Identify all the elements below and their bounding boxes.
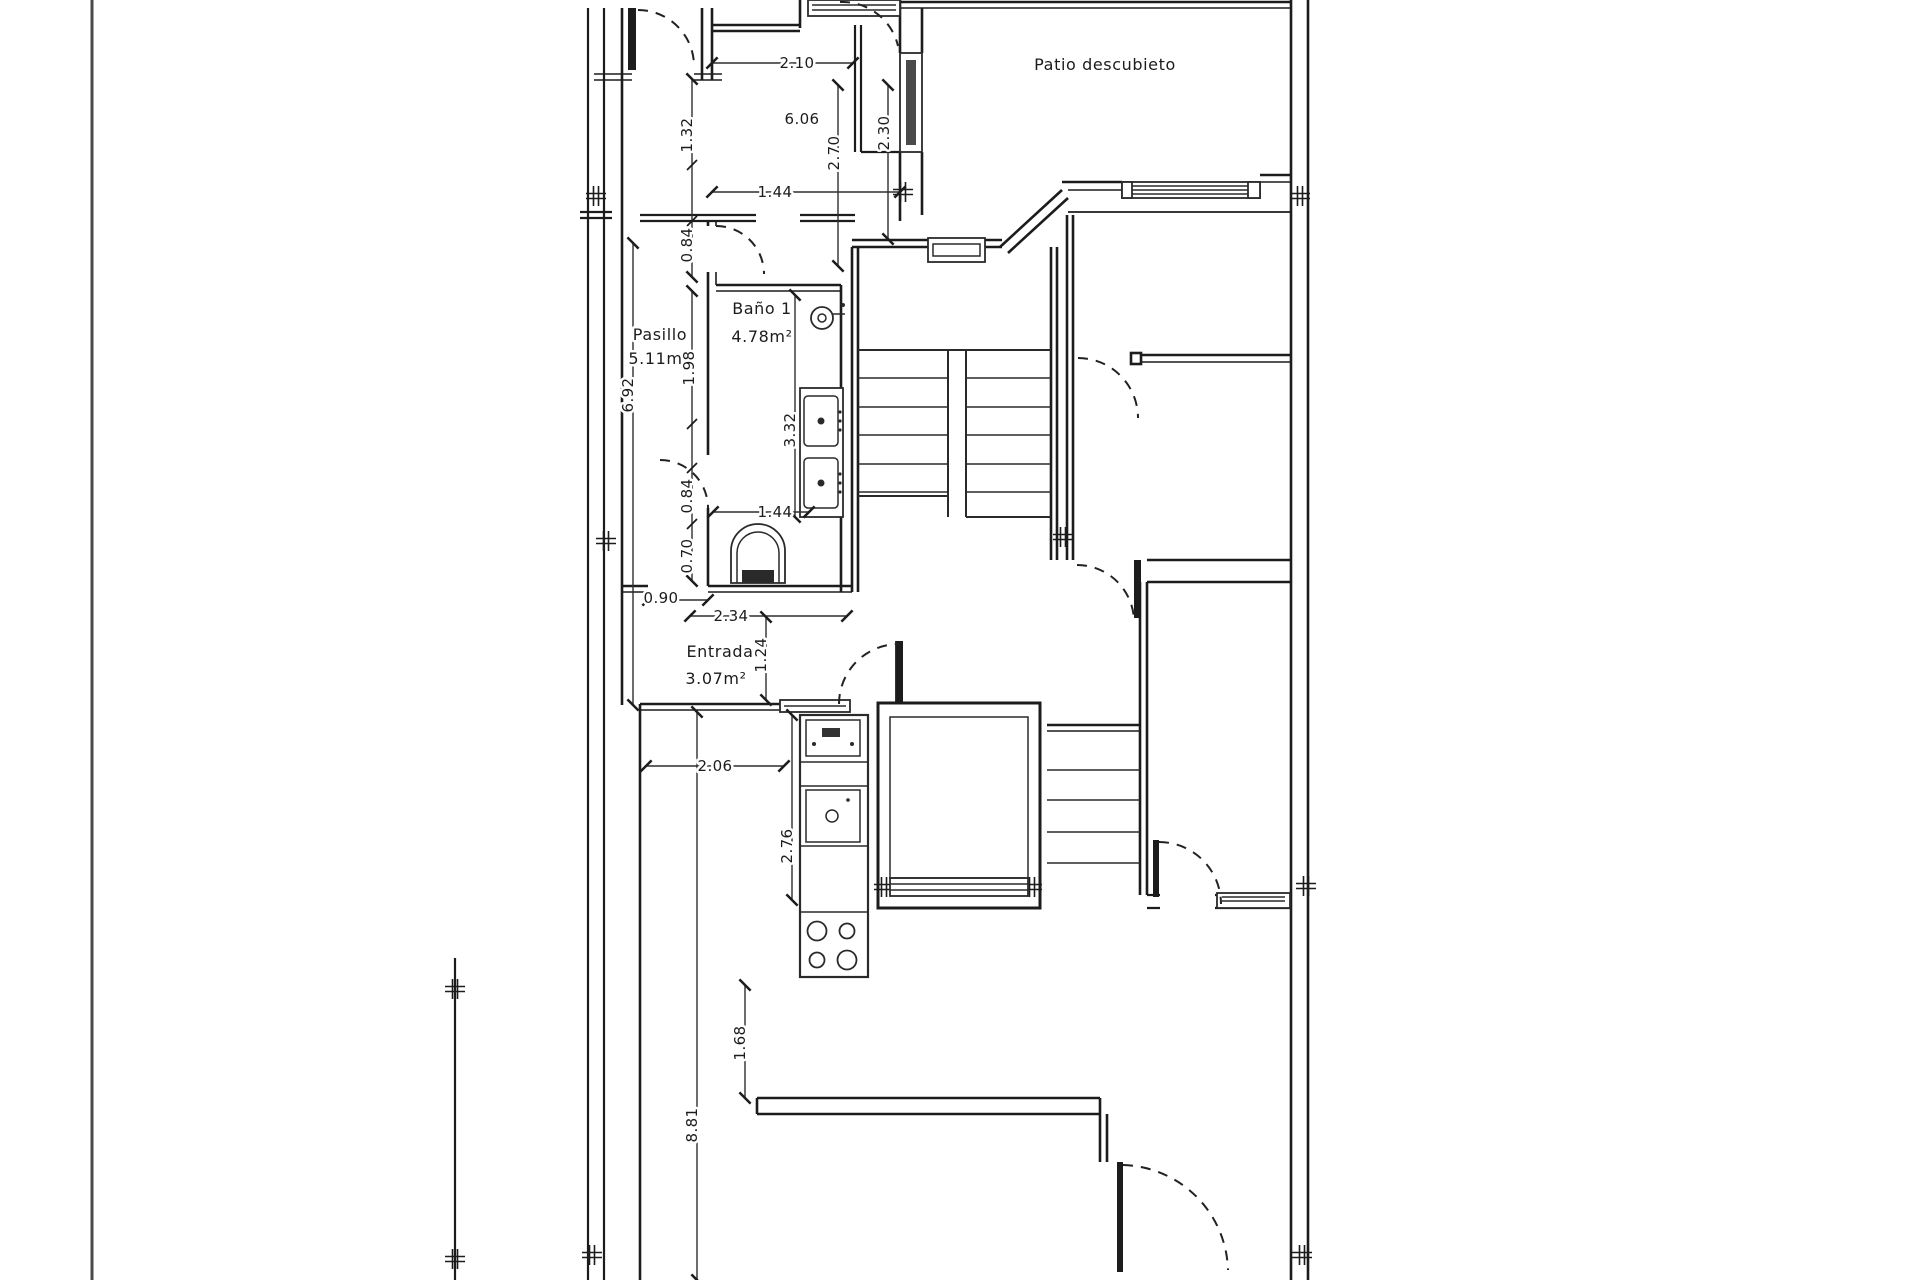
door-corridor-top (628, 8, 694, 70)
door-hall-right (1153, 840, 1221, 904)
dim-top-room-height-left: 2.70 (825, 136, 843, 171)
dim-top-room-width: 2.10 (780, 54, 815, 72)
dim-lower-length: 8.81 (683, 1108, 701, 1143)
bathroom-name-label: Baño 1 (732, 299, 792, 318)
stove-symbol (808, 922, 857, 970)
door-room-a (1078, 358, 1138, 418)
dim-bath-seg2: 0.84 (678, 479, 696, 514)
door-room-b (1077, 560, 1141, 622)
dim-corridor-seg2: 0.84 (678, 228, 696, 263)
dim-bath-seg3: 0.70 (678, 539, 696, 574)
door-entry-main (839, 641, 903, 704)
floor-plan-drawing: Patio descubieto Baño 1 4.78m² Pasillo 5… (0, 0, 1920, 1280)
dim-kitchen-wall: 1.68 (731, 1026, 749, 1061)
door-bottom-room (1117, 1162, 1228, 1272)
dim-bath-length: 3.32 (781, 413, 799, 448)
dim-top-opening: 1.44 (758, 183, 793, 201)
patio-label: Patio descubieto (1034, 55, 1176, 74)
entry-area-label: 3.07m² (685, 669, 746, 688)
window-room-right-wall (900, 53, 922, 152)
toilet-symbol (731, 524, 785, 583)
window-stair-landing (928, 238, 985, 262)
window-top-box (808, 0, 900, 16)
vanity-sinks-symbol (800, 388, 843, 517)
floor-plan-page: Patio descubieto Baño 1 4.78m² Pasillo 5… (0, 0, 1920, 1280)
kitchen-counter (800, 715, 868, 977)
dim-entry-depth: 1.24 (752, 638, 770, 673)
window-symbols (780, 0, 1290, 908)
window-lightwell-sill (890, 878, 1028, 896)
dim-corridor-seg1: 1.32 (678, 118, 696, 153)
dim-bath-opening: 1.44 (758, 503, 793, 521)
dim-kitchen-width: 2.06 (698, 757, 733, 775)
secondary-staircase (1047, 770, 1140, 863)
bathroom-area-label: 4.78m² (731, 327, 792, 346)
dim-bath-width: 2.34 (714, 607, 749, 625)
kitchen-sink-symbol (806, 720, 860, 756)
door-bath-anteroom (716, 226, 764, 274)
survey-cross-marks (445, 182, 1316, 1269)
lightwell (878, 703, 1040, 908)
entry-name-label: Entrada (686, 642, 753, 661)
window-patio-wall (1122, 182, 1260, 198)
kitchen-appliance-symbol (806, 790, 860, 842)
main-staircase (858, 350, 1051, 517)
dim-top-room-height-right: 2.30 (875, 116, 893, 151)
hallway-name-label: Pasillo (633, 325, 687, 344)
window-bottom-right (1217, 893, 1290, 908)
dim-corridor-opening: 0.90 (644, 589, 679, 607)
dim-corridor-length: 6.92 (619, 378, 637, 413)
dim-bath-seg1: 1.98 (680, 351, 698, 386)
dim-top-room-area: 6.06 (785, 110, 820, 128)
dim-kitchen-counter: 2.76 (778, 829, 796, 864)
